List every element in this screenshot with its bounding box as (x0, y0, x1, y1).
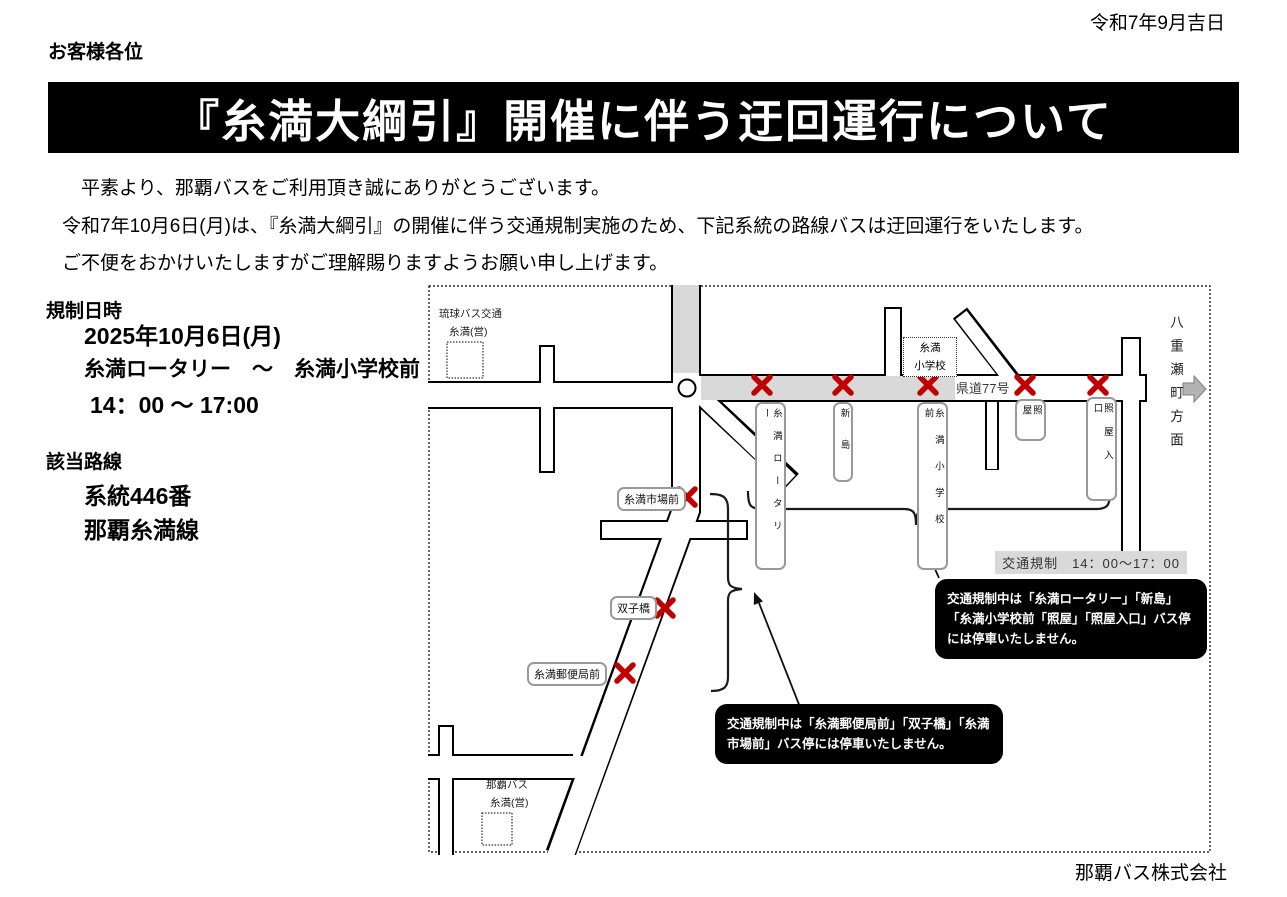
stop-itoman-postoffice: 糸満郵便局前 (527, 662, 607, 686)
road-name-label: 県道77号 (956, 378, 1009, 397)
notice-page: 令和7年9月吉日 お客様各位 『糸満大綱引』開催に伴う迂回運行について 平素より… (0, 0, 1287, 897)
depot-top-line1: 琉球バス交通 (439, 306, 502, 321)
title-banner: 『糸満大綱引』開催に伴う迂回運行について (48, 82, 1239, 153)
intro-line-3: ご不便をおかけいたしますがご理解賜りますようお願い申し上げます。 (62, 245, 1237, 283)
direction-label: 八重瀬町方面 (1165, 315, 1185, 470)
intro-line-1: 平素より、那覇バスをご利用頂き誠にありがとうございます。 (62, 170, 1237, 208)
issue-date: 令和7年9月吉日 (1090, 8, 1225, 35)
stop-itoman-elementary: 糸満小学校前 (917, 402, 948, 570)
restriction-date: 2025年10月6日(月) (84, 317, 281, 351)
route-map: 琉球バス交通 糸満(営) 那覇バス 糸満(営) 糸満 小学校 県道77号 八重瀬… (428, 285, 1212, 855)
route-number: 系統446番 (84, 477, 191, 511)
depot-bottom-line1: 那覇バス (486, 777, 528, 792)
school-box: 糸満 小学校 (903, 337, 957, 377)
restriction-time: 14：00 ～ 17:00 (90, 386, 259, 420)
stop-itoman-market: 糸満市場前 (617, 487, 686, 511)
depot-top-box (447, 342, 483, 378)
callout-branch-road: 交通規制中は「糸満郵便局前」「双子橋」「糸満市場前」バス停には停車いたしません。 (715, 704, 1003, 764)
depot-bottom-line2: 糸満(営) (490, 795, 529, 810)
depot-top-line2: 糸満(営) (449, 324, 488, 339)
stop-itoman-rotary: 糸満ロータリー (755, 402, 786, 570)
stop-futagobashi: 双子橋 (610, 596, 657, 620)
school-line1: 糸満 (904, 340, 956, 358)
rotary-junction-circle (679, 380, 696, 397)
intro-paragraph: 平素より、那覇バスをご利用頂き誠にありがとうございます。 令和7年10月6日(月… (62, 170, 1237, 283)
direction-arrow-icon (1183, 376, 1206, 402)
regulation-time-label: 交通規制 14：00～17：00 (995, 551, 1187, 574)
stop-teruya-iriguchi: 照屋入口 (1086, 397, 1117, 501)
school-line2: 小学校 (904, 358, 956, 376)
restriction-section: 糸満ロータリー ～ 糸満小学校前 (84, 353, 420, 383)
route-name: 那覇糸満線 (84, 511, 199, 545)
company-name: 那覇バス株式会社 (1075, 858, 1227, 885)
intro-line-2: 令和7年10月6日(月)は、『糸満大綱引』の開催に伴う交通規制実施のため、下記系… (62, 208, 1237, 246)
stop-teruya: 照屋 (1015, 399, 1046, 441)
salutation: お客様各位 (48, 37, 143, 64)
routes-heading: 該当路線 (46, 447, 122, 474)
page-title: 『糸満大綱引』開催に伴う迂回運行について (174, 85, 1113, 150)
depot-bottom-box (482, 813, 512, 845)
stop-niijima: 新島 (833, 402, 853, 482)
callout-main-road: 交通規制中は「糸満ロータリー」「新島」「糸満小学校前「照屋」「照屋入口」バス停に… (935, 579, 1207, 659)
